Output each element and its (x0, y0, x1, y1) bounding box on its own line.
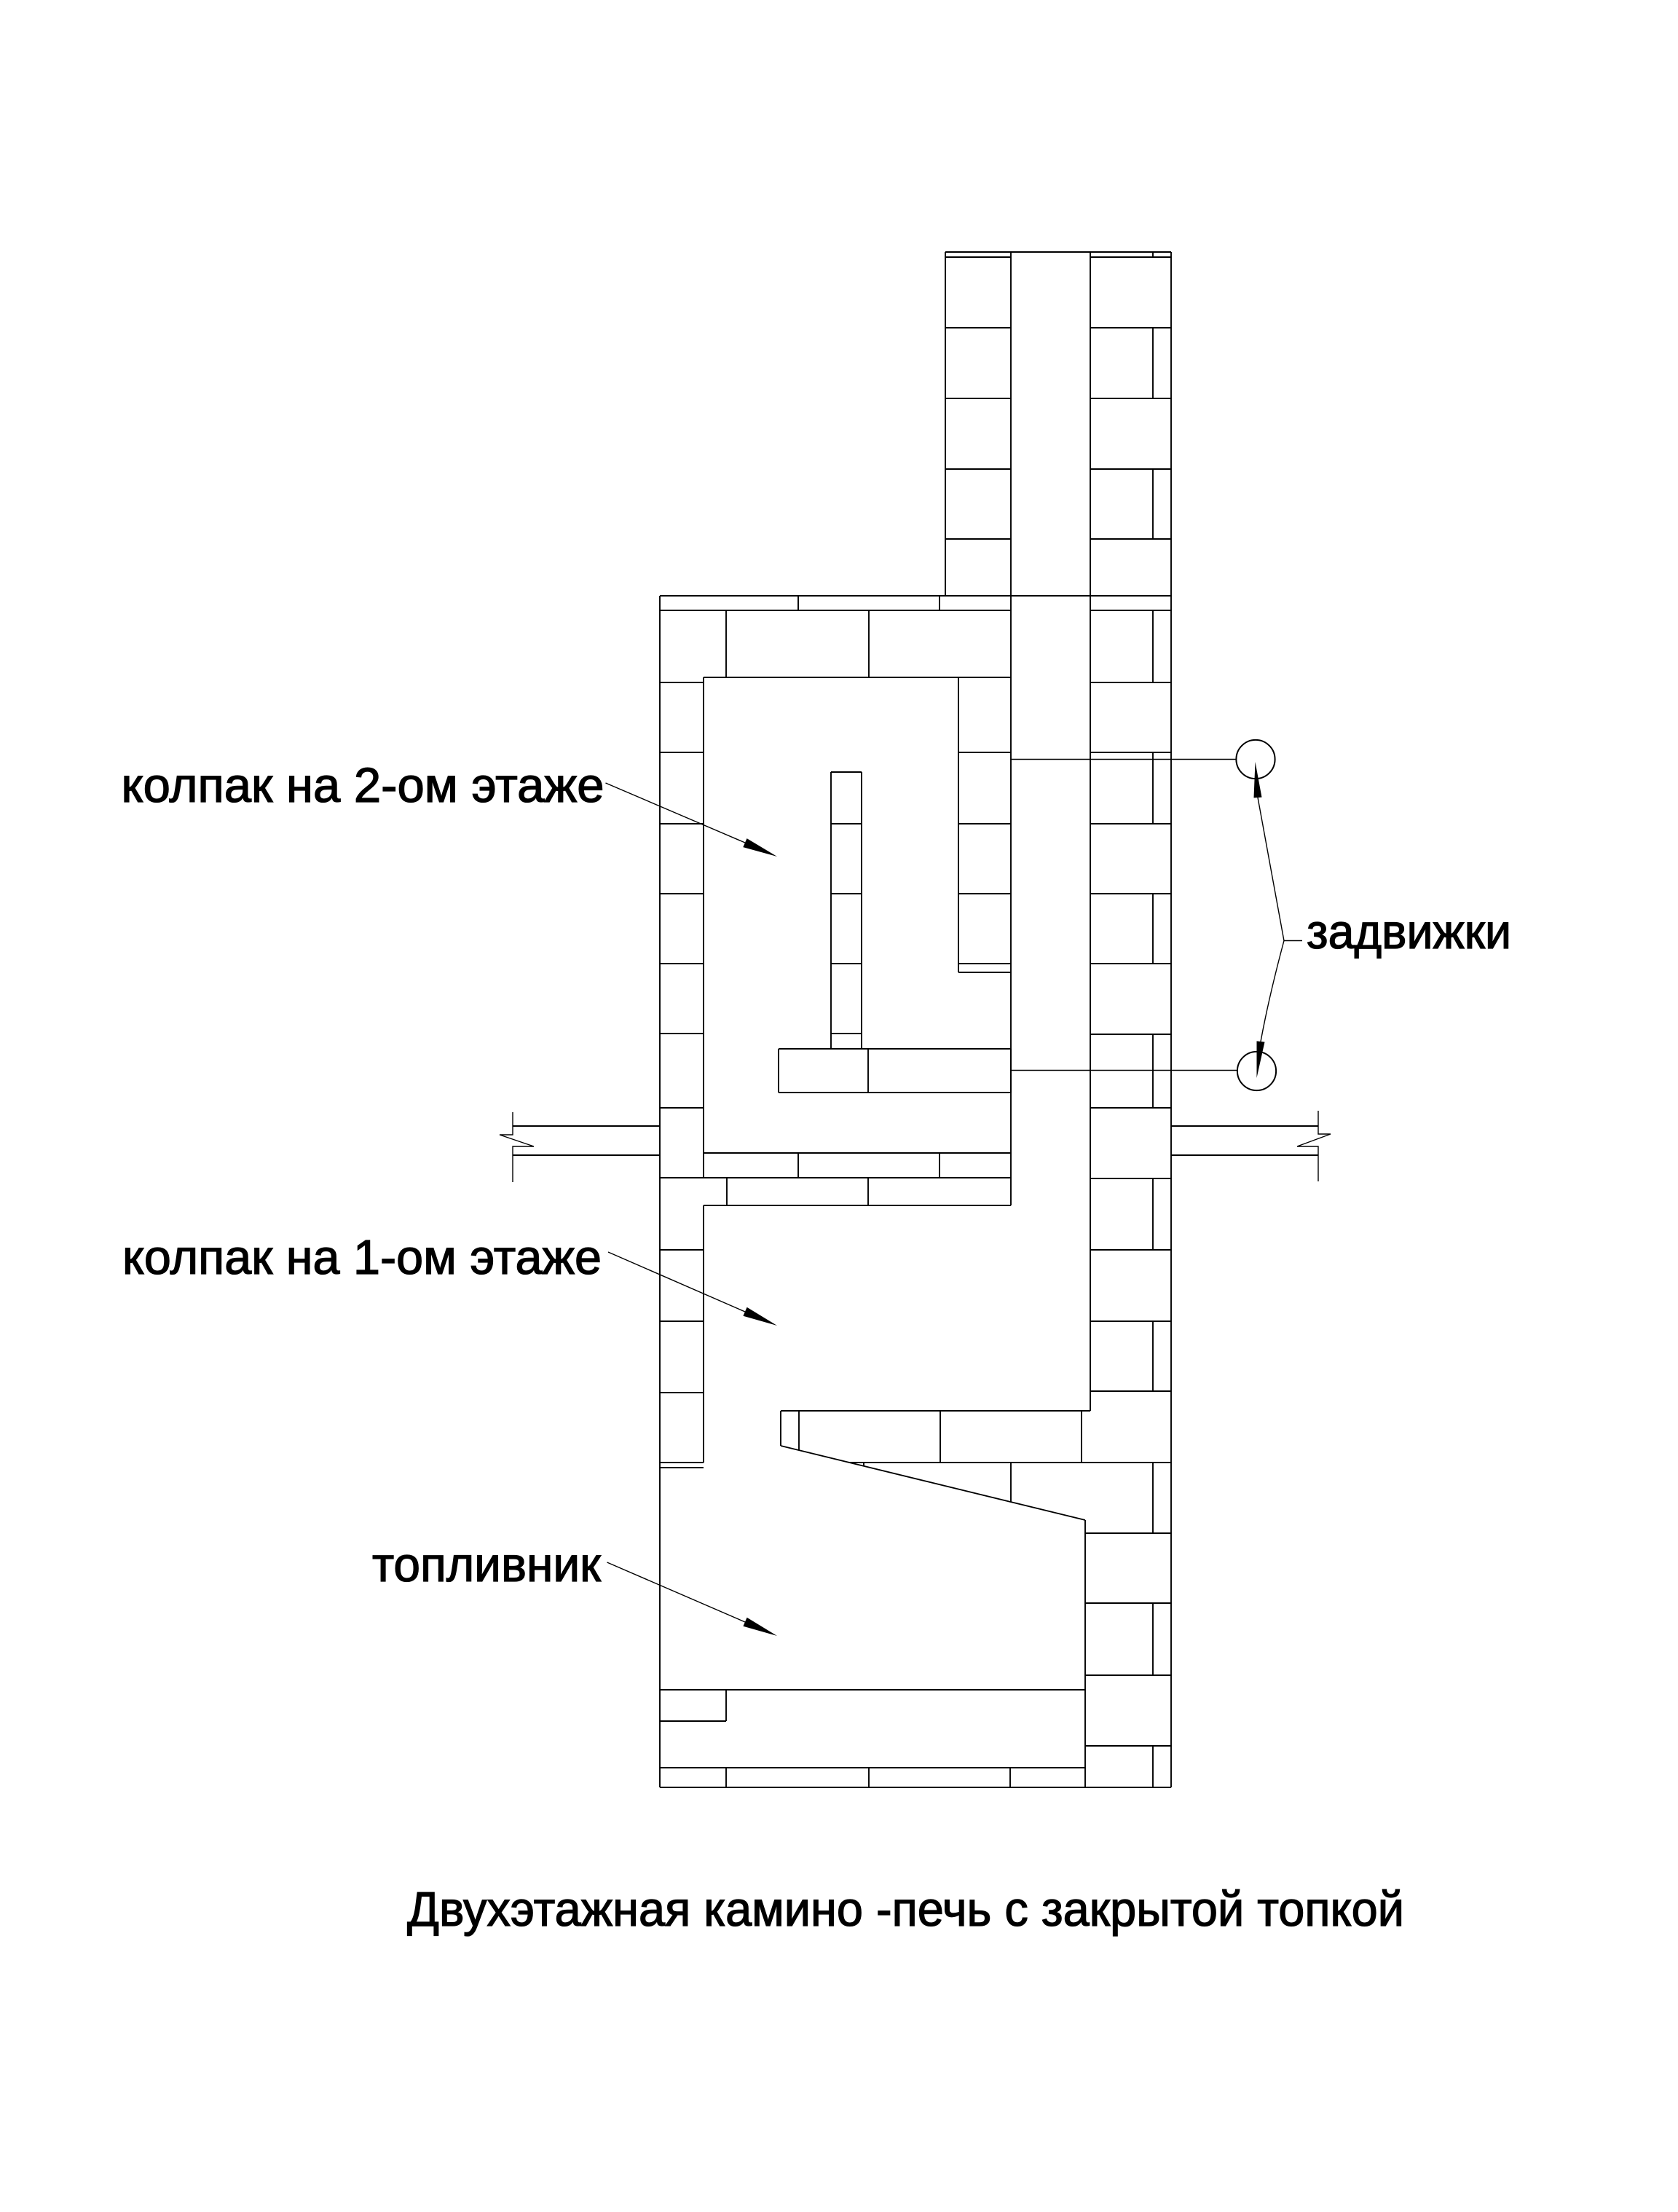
svg-text:задвижки: задвижки (1307, 905, 1511, 959)
svg-text:Двухэтажная камино -печь с зак: Двухэтажная камино -печь с закрытой топк… (407, 1882, 1404, 1937)
svg-text:топливник: топливник (372, 1538, 602, 1592)
svg-text:колпак на 2-ом этаже: колпак на 2-ом этаже (122, 758, 604, 813)
svg-text:колпак на 1-ом этаже: колпак на 1-ом этаже (122, 1230, 602, 1285)
